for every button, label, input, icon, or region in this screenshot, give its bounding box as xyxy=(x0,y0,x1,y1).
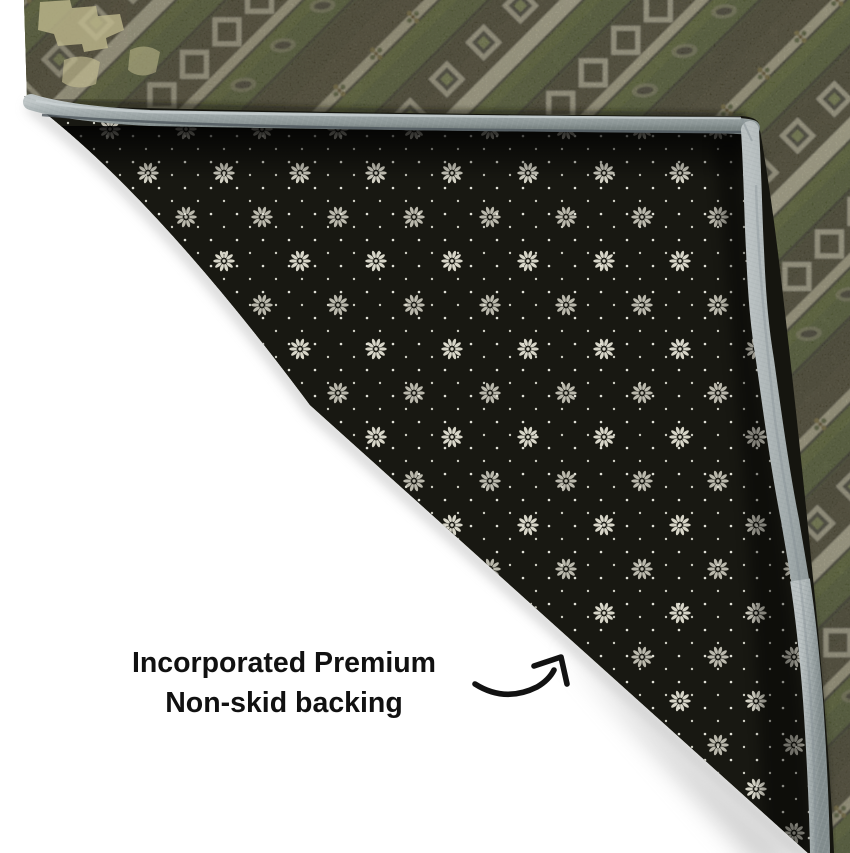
svg-text:Incorporated Premium: Incorporated Premium xyxy=(132,647,436,679)
svg-text:Non-skid backing: Non-skid backing xyxy=(165,687,403,719)
